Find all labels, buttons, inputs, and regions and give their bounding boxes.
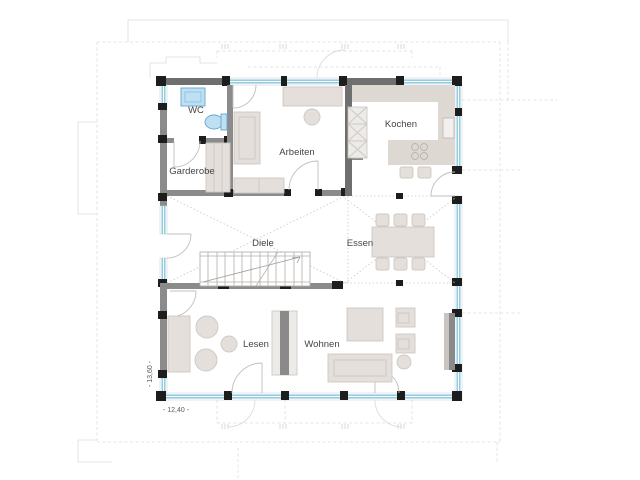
floor-plan-canvas: WC Garderobe Arbeiten Kochen Diele Essen…	[0, 0, 640, 480]
window-right-lower	[455, 196, 462, 393]
door-wc	[174, 141, 200, 167]
lounge-chair	[195, 349, 217, 371]
wall-left-garderobe	[160, 107, 167, 196]
dining-chair	[376, 258, 389, 270]
door-kochen-terrace	[431, 172, 455, 196]
room-arbeiten	[234, 87, 342, 193]
lounge-chair	[196, 316, 218, 338]
door-entry-diele	[167, 234, 191, 258]
kitchen-sink	[443, 118, 454, 138]
room-label-kochen: Kochen	[385, 119, 417, 130]
top-left-step-outline	[150, 57, 217, 78]
roof-outline-top	[128, 20, 508, 42]
door-arbeiten-bottom	[289, 161, 318, 190]
dim-ticks-bottom	[222, 424, 404, 429]
window-left-bottom	[160, 378, 167, 393]
upper-floor-outline-bottom	[217, 400, 412, 478]
floor-plan-drawing: WC Garderobe Arbeiten Kochen Diele Essen…	[0, 0, 640, 480]
sofa	[328, 354, 392, 382]
window-left-diele-upper	[160, 206, 167, 234]
dining-chair	[376, 214, 389, 226]
dining-chair	[394, 214, 407, 226]
desk	[283, 87, 342, 106]
window-top-kochen	[402, 78, 455, 85]
wall-sideboard-light	[444, 313, 449, 370]
lounge-element	[347, 308, 383, 341]
wall-sideboard	[449, 313, 455, 370]
door-swing-exterior-top	[317, 50, 345, 78]
window-bottom	[160, 393, 462, 400]
tall-cabinets	[348, 107, 367, 158]
room-label-essen: Essen	[347, 238, 373, 249]
dining-chair	[412, 258, 425, 270]
bar-stool	[418, 167, 431, 178]
left-bottom-jog-outline	[78, 440, 112, 462]
room-label-wohnen: Wohnen	[304, 339, 339, 350]
window-right-upper	[455, 85, 462, 170]
toilet	[205, 115, 223, 129]
room-label-arbeiten: Arbeiten	[279, 147, 314, 158]
room-wohnen	[328, 308, 455, 382]
door-lesen-terrace	[232, 363, 262, 393]
room-label-diele: Diele	[252, 238, 274, 249]
kitchen-island	[388, 140, 455, 165]
office-sofa	[234, 112, 260, 164]
window-top-arbeiten	[230, 78, 345, 85]
bar-stool	[400, 167, 413, 178]
coffee-table	[397, 355, 411, 369]
wall-left-lesen	[160, 287, 167, 372]
lesen-sideboard	[168, 316, 190, 372]
side-table	[221, 336, 237, 352]
room-divider-core	[280, 311, 289, 375]
door-arbeiten-top	[233, 85, 256, 108]
room-label-lesen: Lesen	[243, 339, 269, 350]
dimension-width: - 12,40 -	[163, 407, 190, 414]
wall-top-wc	[160, 78, 230, 85]
wall-wc-divider-stub	[167, 138, 174, 143]
armchair	[396, 334, 415, 353]
toilet-tank	[221, 114, 227, 130]
staircase	[200, 252, 310, 286]
dining-table	[372, 227, 434, 257]
right-side-lines	[462, 42, 557, 462]
armchair	[396, 308, 415, 327]
wall-top-kochen	[345, 78, 402, 85]
room-label-garderobe: Garderobe	[169, 166, 214, 177]
room-lesen	[168, 311, 297, 375]
dining-chair	[394, 258, 407, 270]
desk-chair	[304, 109, 320, 125]
left-jog-outline	[78, 122, 97, 214]
dining-chair	[412, 214, 425, 226]
wall-arbeiten-diele-right	[318, 190, 345, 196]
door-lesen-inner	[170, 291, 196, 317]
door-swings-exterior-bottom	[228, 400, 402, 427]
dimension-height: - 13,60 -	[147, 360, 154, 387]
dim-ticks-top	[222, 44, 404, 49]
kitchen-counter-top	[352, 85, 455, 102]
room-essen	[372, 214, 434, 270]
room-label-wc: WC	[188, 105, 204, 116]
room-kochen	[348, 85, 455, 178]
